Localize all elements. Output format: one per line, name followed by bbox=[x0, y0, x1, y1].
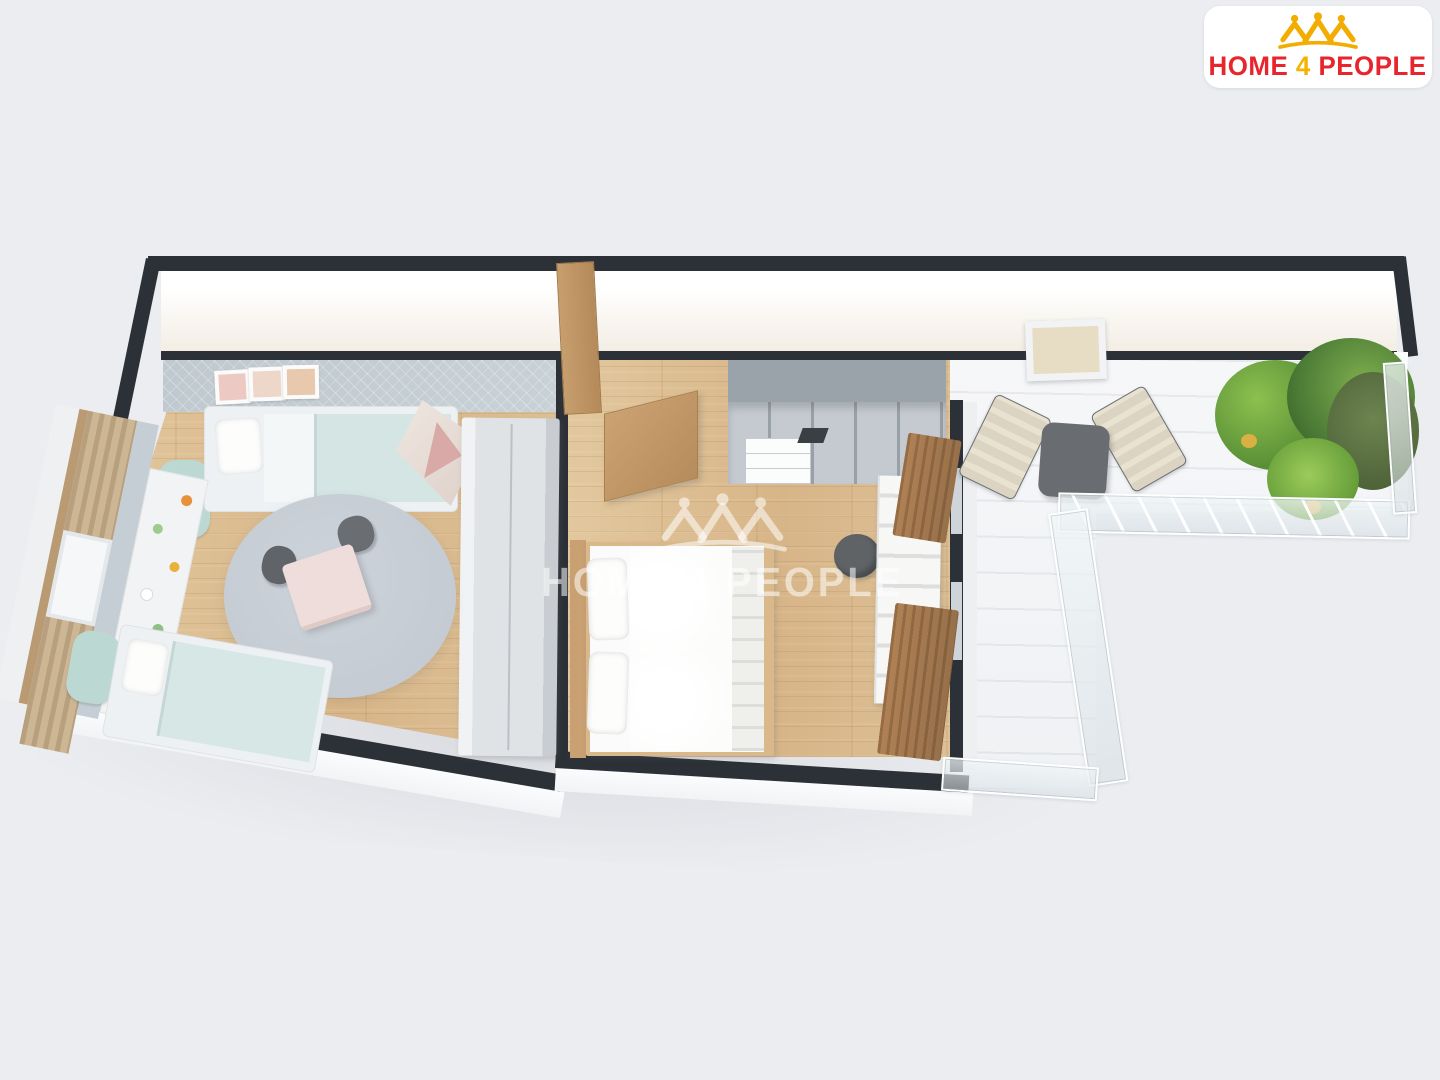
yellow-pot-1 bbox=[1241, 434, 1257, 448]
toy-green-1 bbox=[152, 523, 164, 535]
bed-headboard-wood bbox=[570, 540, 586, 758]
shelving-unit-top-face bbox=[728, 360, 946, 402]
toy-orange-2 bbox=[169, 561, 181, 573]
crown-houses-icon bbox=[1268, 12, 1368, 50]
wall-frame-3 bbox=[283, 365, 320, 400]
skylight-window bbox=[1025, 319, 1107, 382]
children-wardrobe bbox=[458, 417, 560, 756]
brand-logo-text: HOME 4 PEOPLE bbox=[1209, 51, 1427, 82]
north-wall-inner-edge bbox=[161, 351, 1397, 360]
entry-door-open bbox=[556, 261, 602, 415]
shelf-item-dark bbox=[797, 428, 828, 443]
bed-pillow bbox=[214, 416, 264, 475]
balcony-table bbox=[1038, 422, 1111, 501]
pillow-lower bbox=[587, 651, 630, 734]
logo-word-4: 4 bbox=[1296, 51, 1311, 81]
white-drawer-unit bbox=[746, 438, 810, 484]
wall-frame-1 bbox=[214, 369, 251, 405]
double-bed bbox=[586, 542, 774, 756]
duvet bbox=[630, 547, 732, 751]
brand-logo-card: HOME 4 PEOPLE bbox=[1204, 6, 1432, 88]
toy-orange-1 bbox=[180, 494, 193, 507]
logo-word-people: PEOPLE bbox=[1319, 51, 1427, 81]
wardrobe-door-seam bbox=[507, 424, 512, 750]
floor-plan-render-page: { "meta": { "image_type": "3d-apartment-… bbox=[0, 0, 1440, 1080]
glass-railing-top bbox=[1058, 492, 1411, 539]
folded-blankets bbox=[732, 547, 764, 751]
north-outer-wall bbox=[148, 256, 1404, 271]
logo-word-home: HOME bbox=[1209, 51, 1289, 81]
wall-frame-2 bbox=[248, 366, 285, 401]
north-wall-lit-face bbox=[161, 271, 1397, 353]
toy-white-1 bbox=[140, 588, 153, 601]
pillow-upper bbox=[587, 557, 630, 640]
bedroom-pouf bbox=[834, 534, 880, 578]
teepee-opening bbox=[420, 422, 462, 478]
